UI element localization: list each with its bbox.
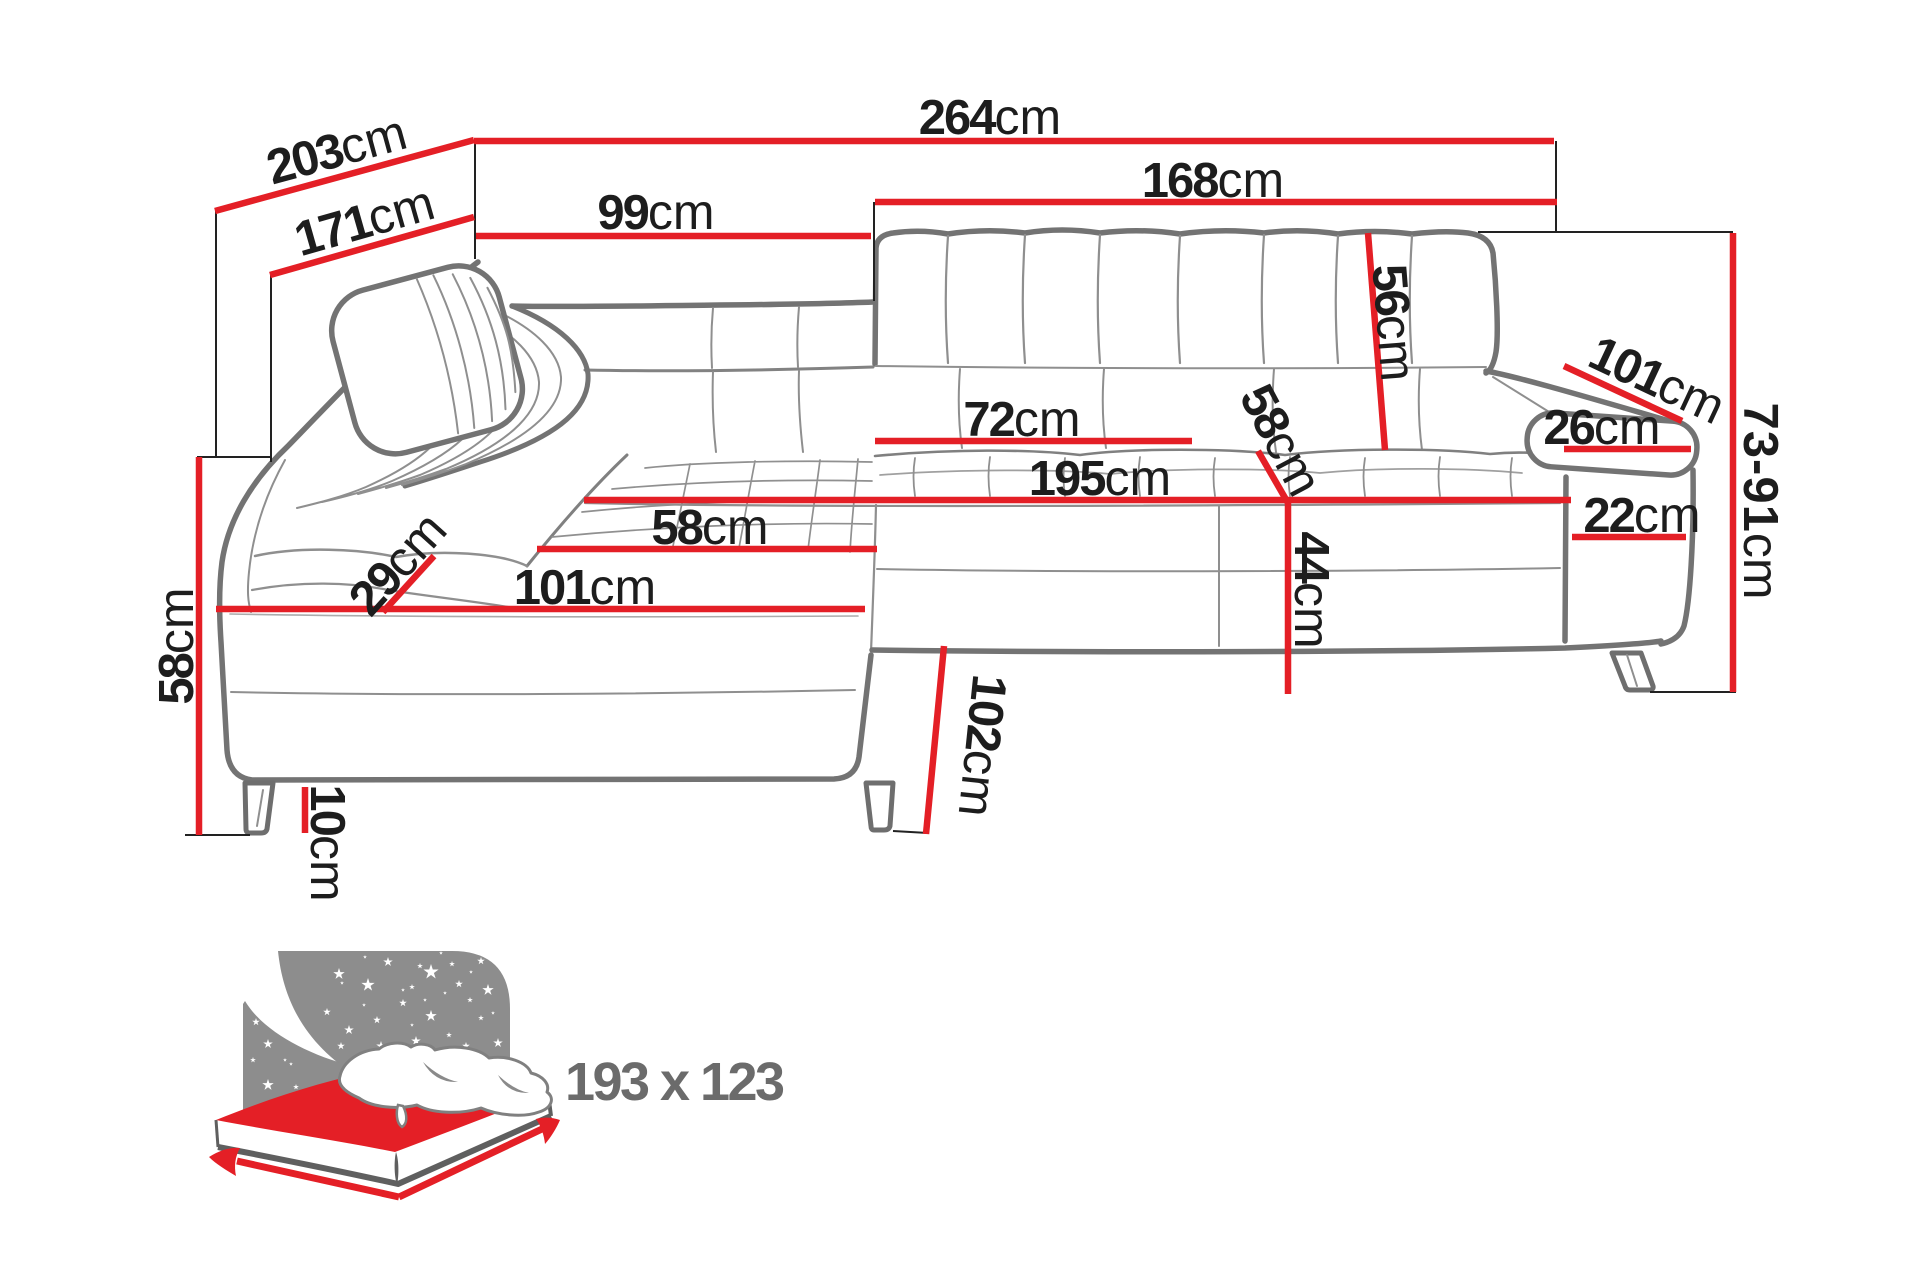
svg-text:22cm: 22cm — [1583, 487, 1700, 543]
svg-text:168cm: 168cm — [1142, 152, 1284, 208]
svg-text:72cm: 72cm — [963, 391, 1080, 447]
svg-text:264cm: 264cm — [919, 89, 1061, 145]
svg-text:195cm: 195cm — [1029, 450, 1171, 506]
svg-text:26cm: 26cm — [1543, 399, 1660, 455]
svg-text:56cm: 56cm — [1361, 262, 1426, 383]
svg-text:10cm: 10cm — [300, 784, 356, 901]
svg-text:58cm: 58cm — [148, 587, 204, 704]
svg-text:58cm: 58cm — [651, 499, 768, 555]
svg-text:99cm: 99cm — [597, 184, 714, 240]
svg-text:101cm: 101cm — [514, 559, 656, 615]
svg-text:73-91cm: 73-91cm — [1733, 403, 1789, 600]
svg-text:44cm: 44cm — [1284, 531, 1340, 648]
svg-text:193 x 123: 193 x 123 — [565, 1052, 785, 1112]
